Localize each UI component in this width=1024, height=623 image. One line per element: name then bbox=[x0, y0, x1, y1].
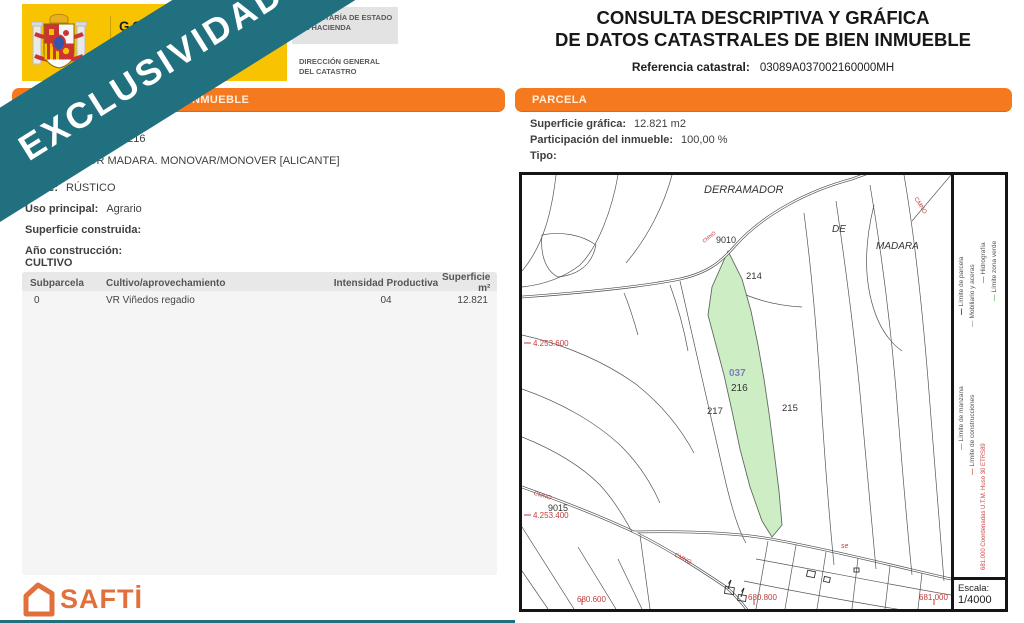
superficie-grafica-label: Superficie gráfica: bbox=[530, 118, 626, 130]
table-row: 0 VR Viñedos regadio 04 12.821 bbox=[22, 291, 497, 310]
title-line1: CONSULTA DESCRIPTIVA Y GRÁFICA bbox=[517, 7, 1009, 29]
cultivo-title: CULTIVO bbox=[25, 257, 72, 269]
legend-swatch-manzana: — bbox=[958, 444, 965, 451]
escala-box: Escala: 1/4000 bbox=[954, 577, 1005, 609]
legend-manzana: —Límite de manzana bbox=[958, 386, 965, 450]
participacion-row: Participación del inmueble:100,00 % bbox=[530, 134, 728, 146]
anio-construccion-row: Año construcción: bbox=[25, 245, 122, 257]
cell-subparcela: 0 bbox=[22, 295, 86, 306]
place-derramador-label: DERRAMADOR bbox=[704, 184, 784, 196]
referencia-catastral: Referencia catastral:03089A037002160000M… bbox=[517, 58, 1009, 76]
direccion-line2: DEL CATASTRO bbox=[299, 67, 380, 77]
direccion-line1: DIRECCIÓN GENERAL bbox=[299, 57, 380, 67]
escala-label: Escala: bbox=[958, 583, 1005, 594]
utm-note: 681.000 Coordenadas U.T.M. Huso 30 ETRS8… bbox=[981, 443, 987, 570]
tipo-label: Tipo: bbox=[530, 150, 557, 162]
uso-value: Agrario bbox=[106, 203, 141, 215]
parcel-216-label: 216 bbox=[731, 383, 748, 394]
superficie-grafica-row: Superficie gráfica:12.821 m2 bbox=[530, 118, 686, 130]
clase-value: RÚSTICO bbox=[66, 182, 116, 194]
document-title: CONSULTA DESCRIPTIVA Y GRÁFICA DE DATOS … bbox=[517, 7, 1009, 51]
cell-superficie: 12.821 bbox=[442, 295, 497, 306]
legend-swatch-parcela: — bbox=[958, 309, 965, 316]
direccion-general-text: DIRECCIÓN GENERAL DEL CATASTRO bbox=[299, 57, 380, 76]
participacion-value: 100,00 % bbox=[681, 134, 727, 146]
node-9010-label: 9010 bbox=[716, 235, 736, 245]
cadastral-map-frame: DERRAMADOR DE MADARA 9010 214 037 216 21… bbox=[519, 172, 1008, 612]
uso-row: Uso principal:Agrario bbox=[25, 203, 142, 215]
se-label: se bbox=[841, 543, 849, 550]
document-page: GOBIERNO DE ESPAÑA SECRETARÍA DE ESTADO … bbox=[0, 0, 1024, 623]
superficie-construida-row: Superficie construida: bbox=[25, 224, 141, 236]
safti-logo: SAFTİ bbox=[20, 580, 143, 618]
place-madara-label: MADARA bbox=[876, 241, 919, 252]
coord-4253600-label: 4.253.600 bbox=[533, 339, 569, 348]
col-subparcela: Subparcela bbox=[22, 278, 86, 289]
parcel-214-label: 214 bbox=[746, 271, 762, 282]
legend-swatch-mobiliario: — bbox=[969, 321, 976, 328]
section-bar-parcela: PARCELA bbox=[515, 88, 1012, 111]
road-cmno-label-1: CMNO bbox=[533, 491, 553, 502]
cell-cultivo: VR Viñedos regadio bbox=[86, 295, 330, 306]
col-intensidad: Intensidad Productiva bbox=[330, 278, 442, 289]
legend-swatch-zona-verde: — bbox=[991, 295, 998, 302]
title-line2: DE DATOS CATASTRALES DE BIEN INMUEBLE bbox=[517, 29, 1009, 51]
legend-construcciones: —Límite de construcciones bbox=[969, 395, 976, 475]
anio-construccion-label: Año construcción: bbox=[25, 245, 122, 257]
referencia-value: 03089A037002160000MH bbox=[760, 62, 894, 74]
referencia-label: Referencia catastral: bbox=[632, 60, 750, 74]
cadastral-map: DERRAMADOR DE MADARA 9010 214 037 216 21… bbox=[522, 175, 954, 609]
legend-limite-parcela: —Límite de parcela bbox=[958, 257, 965, 315]
legend-swatch-hidrografia: — bbox=[980, 277, 987, 284]
coord-681000-label: 681.000 bbox=[919, 593, 948, 602]
map-legend: —Límite de parcela —Mobiliario y aceras … bbox=[954, 175, 1005, 609]
cadastral-map-drawing: DERRAMADOR DE MADARA 9010 214 037 216 21… bbox=[522, 175, 951, 609]
parcel-217-label: 217 bbox=[707, 406, 723, 417]
buildings bbox=[724, 568, 859, 602]
uso-label: Uso principal: bbox=[25, 203, 98, 215]
coord-680600-label: 680.600 bbox=[577, 595, 606, 604]
coord-4253400-label: 4.253.400 bbox=[533, 511, 569, 520]
col-superficie: Superficie m² bbox=[442, 272, 499, 294]
legend-swatch-construcciones: — bbox=[969, 469, 976, 476]
road-cmno-label-2: CMNO bbox=[673, 553, 692, 567]
subparcel-037-label: 037 bbox=[729, 368, 746, 379]
place-de-label: DE bbox=[832, 224, 846, 235]
escala-value: 1/4000 bbox=[958, 594, 1005, 606]
cultivo-table: Subparcela Cultivo/aprovechamiento Inten… bbox=[22, 272, 497, 575]
highlighted-parcel-216 bbox=[708, 251, 782, 537]
col-cultivo: Cultivo/aprovechamiento bbox=[86, 278, 330, 289]
safti-wordmark: SAFTİ bbox=[60, 584, 143, 615]
superficie-construida-label: Superficie construida: bbox=[25, 224, 141, 236]
legend-hidrografia: —Hidrografía bbox=[980, 242, 987, 283]
safti-house-icon bbox=[20, 580, 57, 618]
cultivo-table-header: Subparcela Cultivo/aprovechamiento Inten… bbox=[22, 272, 497, 291]
legend-zona-verde: —Límite zona verde bbox=[991, 241, 998, 301]
road-cmno-label-4: CMNO bbox=[912, 197, 927, 216]
coord-680800-label: 680.800 bbox=[748, 593, 777, 602]
section-bar-parcela-label: PARCELA bbox=[532, 94, 587, 106]
cell-intensidad: 04 bbox=[330, 295, 442, 306]
superficie-grafica-value: 12.821 m2 bbox=[634, 118, 686, 130]
legend-mobiliario: —Mobiliario y aceras bbox=[969, 264, 976, 327]
parcel-215-label: 215 bbox=[782, 403, 798, 414]
participacion-label: Participación del inmueble: bbox=[530, 134, 673, 146]
tipo-row: Tipo: bbox=[530, 150, 557, 162]
